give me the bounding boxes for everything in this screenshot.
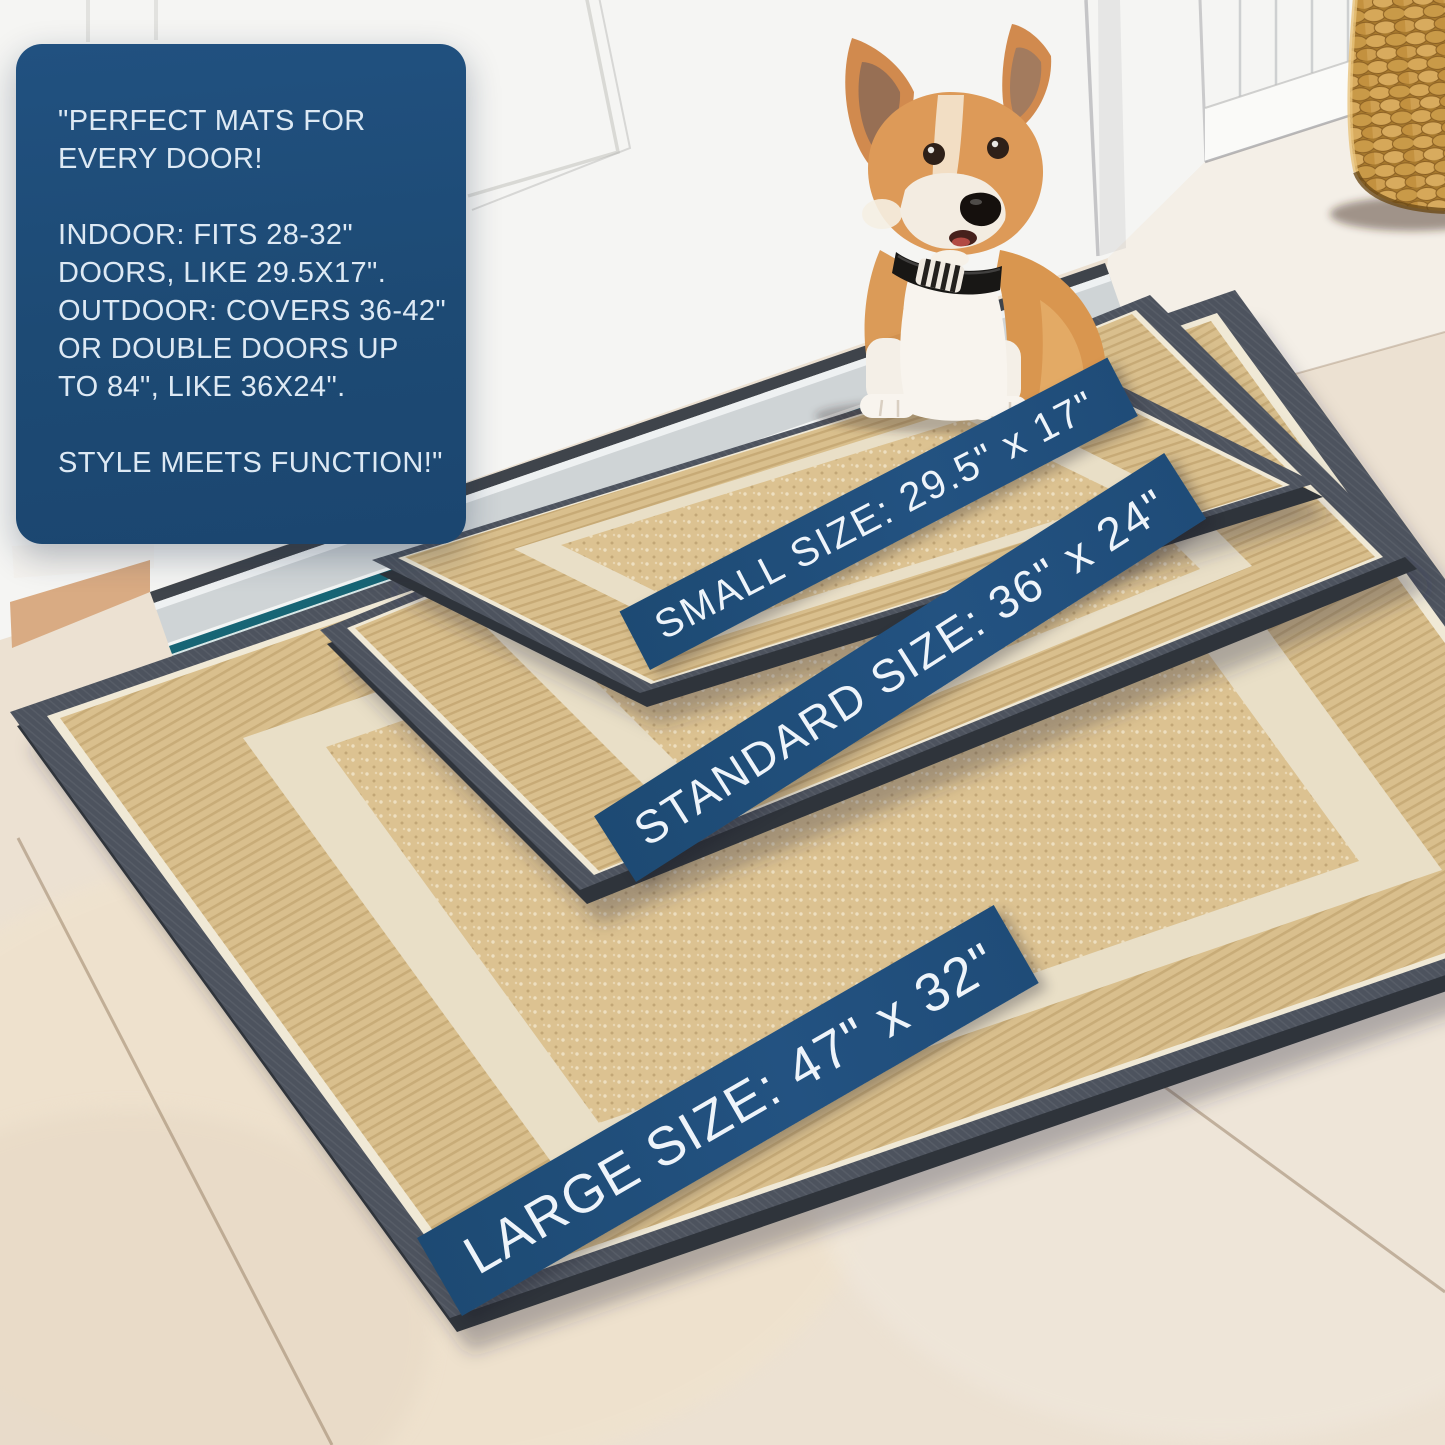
info-box: "PERFECT MATS FOR EVERY DOOR! INDOOR: FI… xyxy=(16,44,466,544)
info-text-line: TO 84", LIKE 36X24". xyxy=(58,368,432,406)
info-text-line: OR DOUBLE DOORS UP xyxy=(58,330,432,368)
info-text-line: EVERY DOOR! xyxy=(58,140,432,178)
info-text-spacer xyxy=(58,178,432,216)
info-text-line: INDOOR: FITS 28-32" xyxy=(58,216,432,254)
info-text-line: OUTDOOR: COVERS 36-42" xyxy=(58,292,432,330)
info-text-line: STYLE MEETS FUNCTION!" xyxy=(58,444,432,482)
info-text-spacer xyxy=(58,406,432,444)
dog-eye xyxy=(923,143,945,165)
product-image: "PERFECT MATS FOR EVERY DOOR! INDOOR: FI… xyxy=(0,0,1445,1445)
info-text-line: "PERFECT MATS FOR xyxy=(58,102,432,140)
dog-eye xyxy=(987,137,1009,159)
info-text-line: DOORS, LIKE 29.5X17". xyxy=(58,254,432,292)
